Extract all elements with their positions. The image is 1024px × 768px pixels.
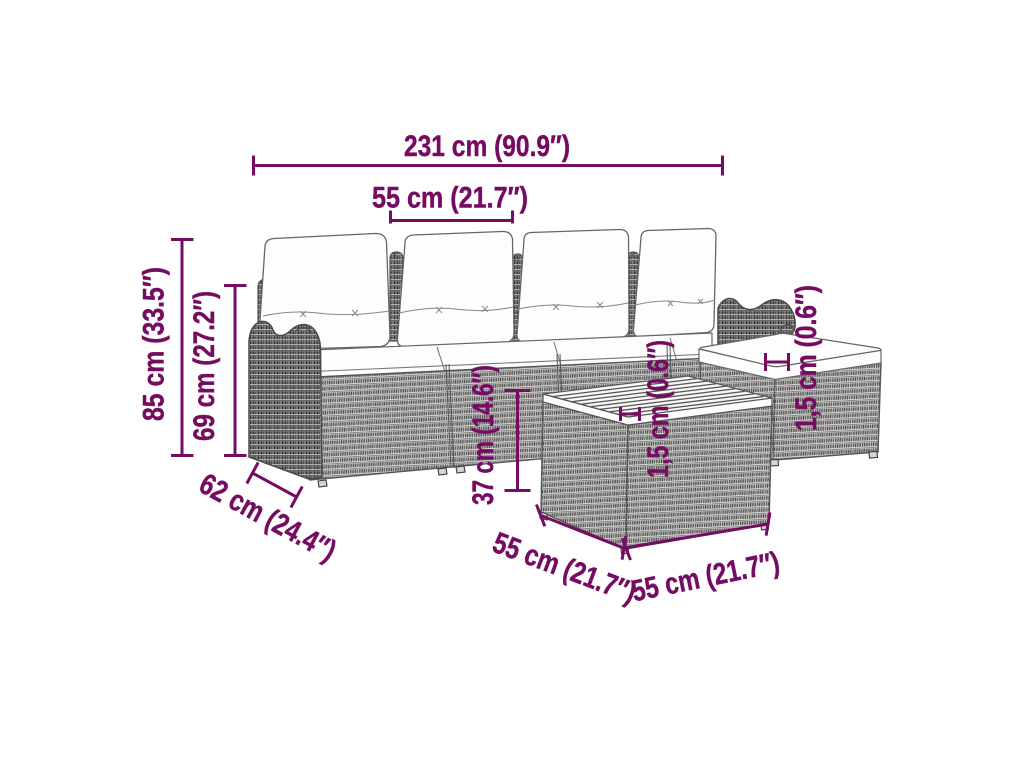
svg-text:1,5 cm (0.6″): 1,5 cm (0.6″) [642, 340, 675, 478]
svg-text:1,5 cm (0.6″): 1,5 cm (0.6″) [790, 285, 823, 431]
svg-text:69 cm (27.2″): 69 cm (27.2″) [188, 291, 221, 441]
svg-text:85 cm (33.5″): 85 cm (33.5″) [138, 267, 171, 421]
svg-text:231 cm (90.9″): 231 cm (90.9″) [404, 130, 570, 163]
svg-text:37 cm (14.6″): 37 cm (14.6″) [467, 365, 500, 505]
svg-text:55 cm (21.7″): 55 cm (21.7″) [372, 182, 528, 215]
